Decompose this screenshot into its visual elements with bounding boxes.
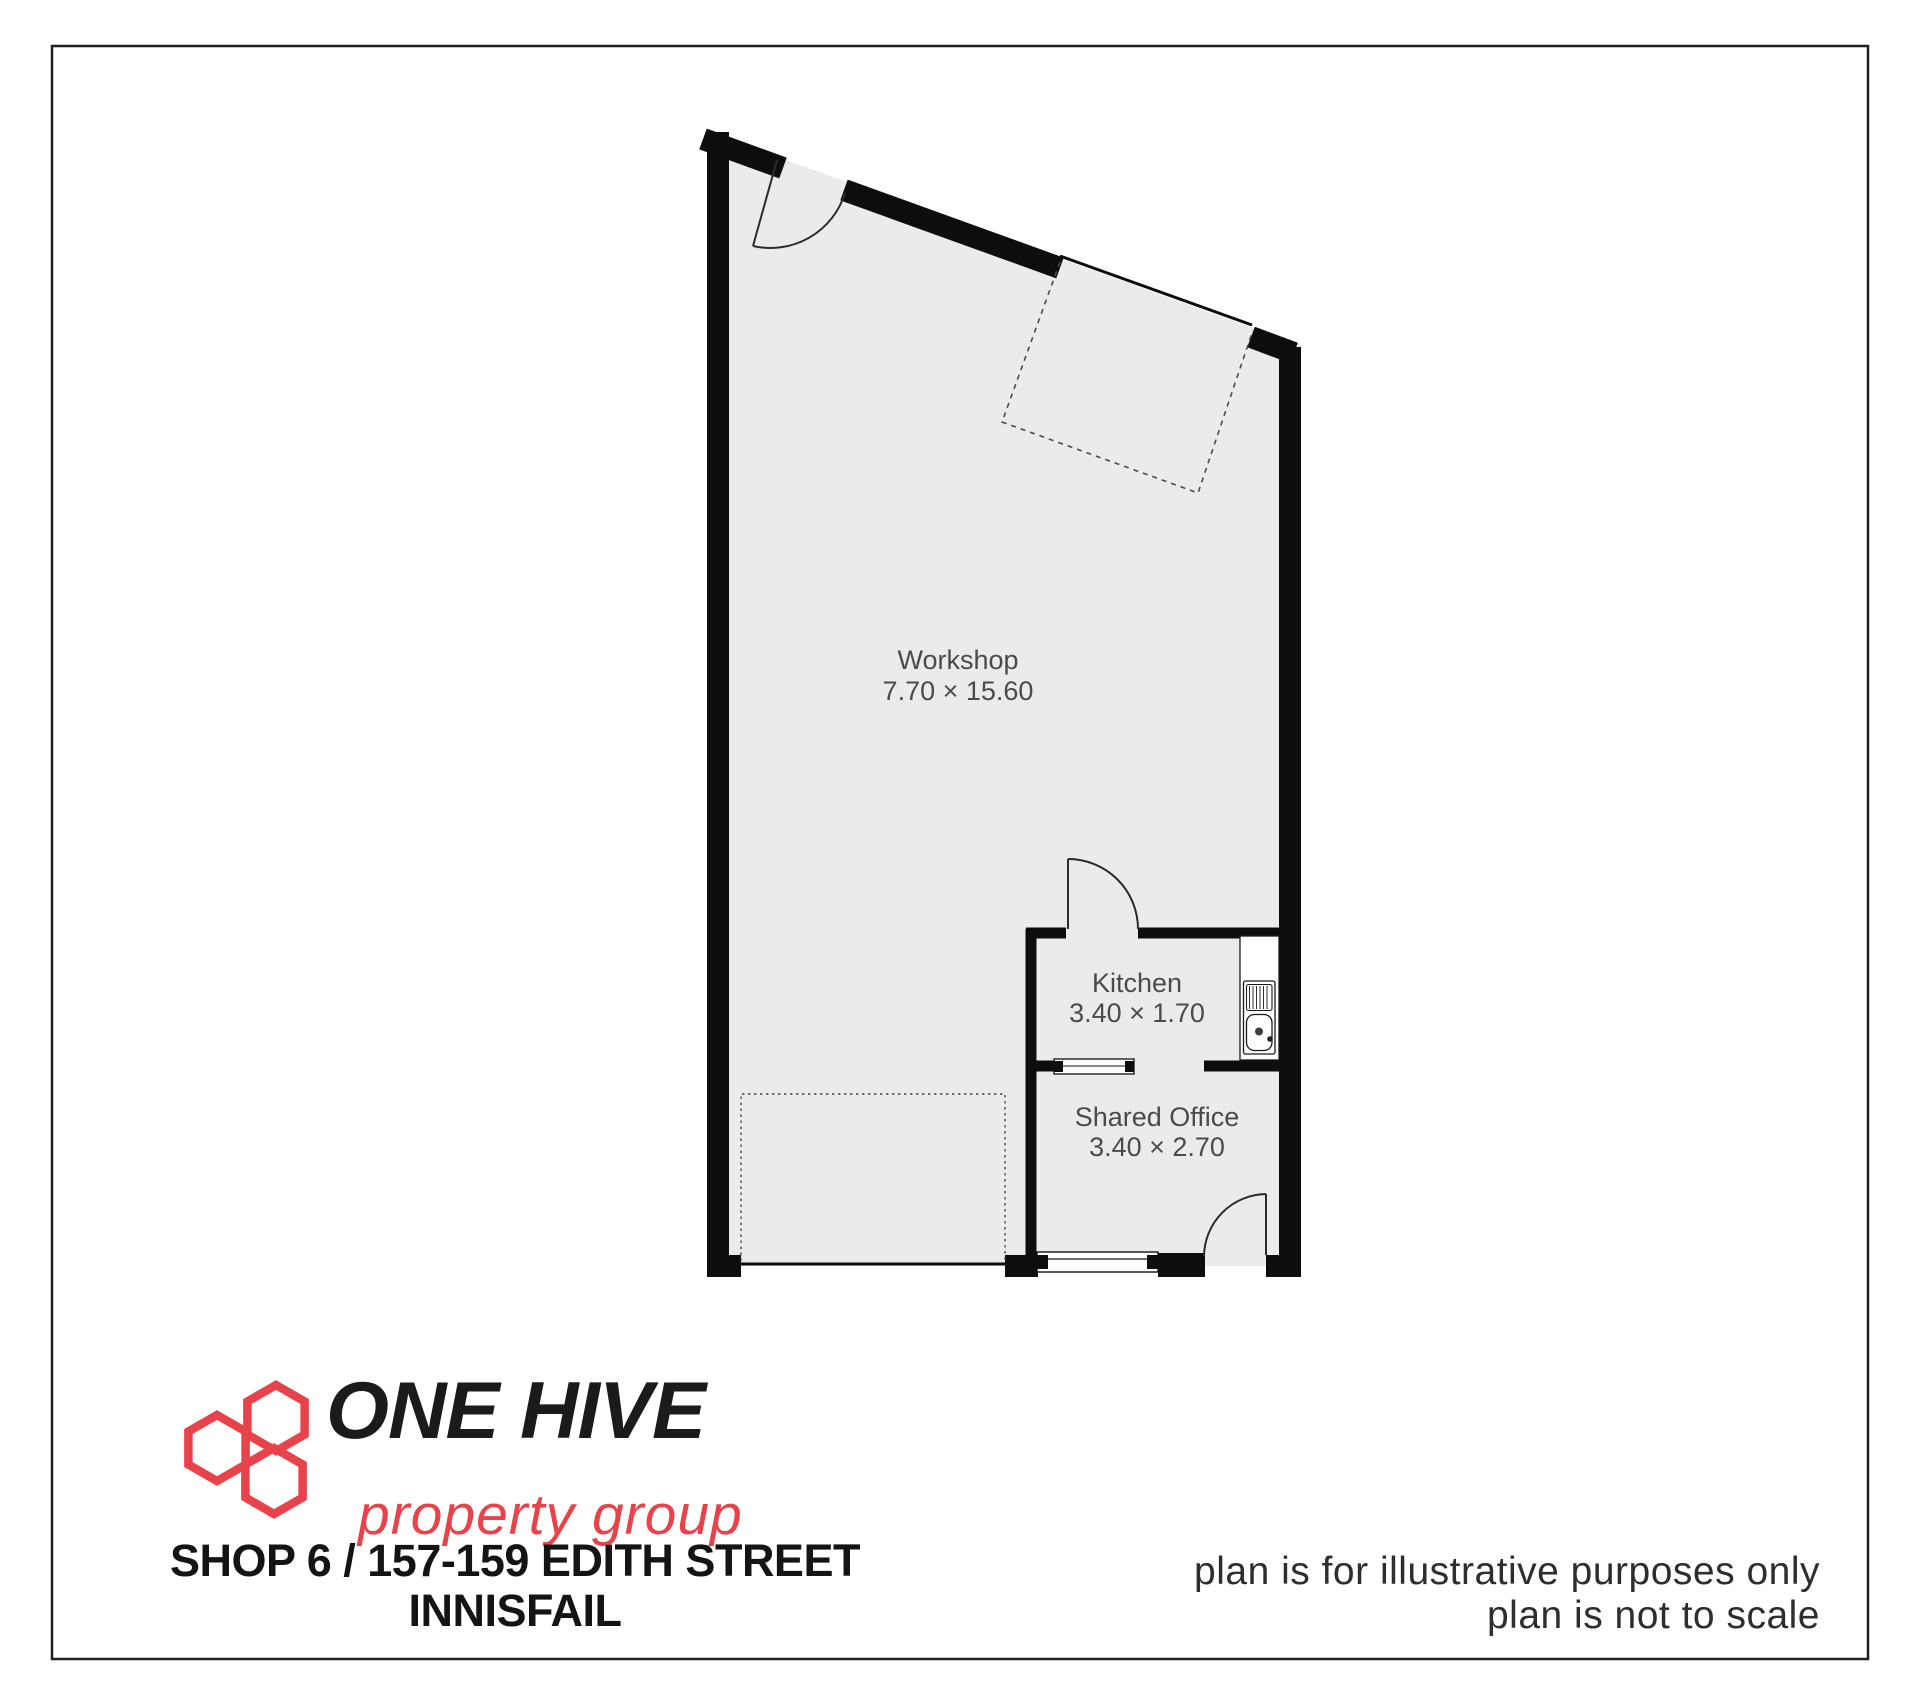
window-frame: [1037, 1252, 1158, 1272]
room-dims-kitchen: 3.40 × 1.70: [1069, 998, 1205, 1028]
wall-block: [707, 1255, 741, 1277]
wall-block: [1158, 1253, 1205, 1277]
wall-block: [1266, 1255, 1301, 1277]
floor-plan-canvas: Workshop 7.70 × 15.60 Kitchen 3.40 × 1.7…: [0, 0, 1920, 1693]
disclaimer-line-2: plan is not to scale: [1194, 1594, 1820, 1638]
property-address: SHOP 6 / 157-159 EDITH STREET INNISFAIL: [115, 1536, 915, 1636]
address-line-1: SHOP 6 / 157-159 EDITH STREET: [115, 1536, 915, 1586]
sink-drain: [1255, 1028, 1263, 1036]
address-line-2: INNISFAIL: [115, 1586, 915, 1636]
honeycomb-logo-icon: [188, 1385, 304, 1514]
hexagon-icon: [188, 1415, 245, 1481]
plan-disclaimer: plan is for illustrative purposes only p…: [1194, 1550, 1820, 1638]
room-dims-workshop: 7.70 × 15.60: [883, 676, 1034, 706]
floor-plan: Workshop 7.70 × 15.60 Kitchen 3.40 × 1.7…: [703, 132, 1301, 1277]
window-symbol: [1054, 1059, 1134, 1074]
logo-title: ONE HIVE: [326, 1371, 705, 1452]
hexagon-icon: [245, 1448, 302, 1514]
room-label-kitchen: Kitchen: [1092, 968, 1182, 998]
sink-icon: [1240, 936, 1279, 1060]
room-label-shared-office: Shared Office: [1075, 1102, 1240, 1132]
room-dims-shared-office: 3.40 × 2.70: [1089, 1132, 1225, 1162]
window-cap: [1054, 1061, 1063, 1072]
room-label-workshop: Workshop: [897, 645, 1018, 675]
window-cap: [1147, 1255, 1158, 1269]
window-symbol: [1037, 1252, 1158, 1272]
disclaimer-line-1: plan is for illustrative purposes only: [1194, 1550, 1820, 1594]
floor-plan-page: Workshop 7.70 × 15.60 Kitchen 3.40 × 1.7…: [0, 0, 1920, 1693]
hexagon-icon: [247, 1385, 304, 1451]
sink-tap: [1267, 1036, 1273, 1042]
window-cap: [1037, 1255, 1048, 1269]
window-cap: [1125, 1061, 1134, 1072]
